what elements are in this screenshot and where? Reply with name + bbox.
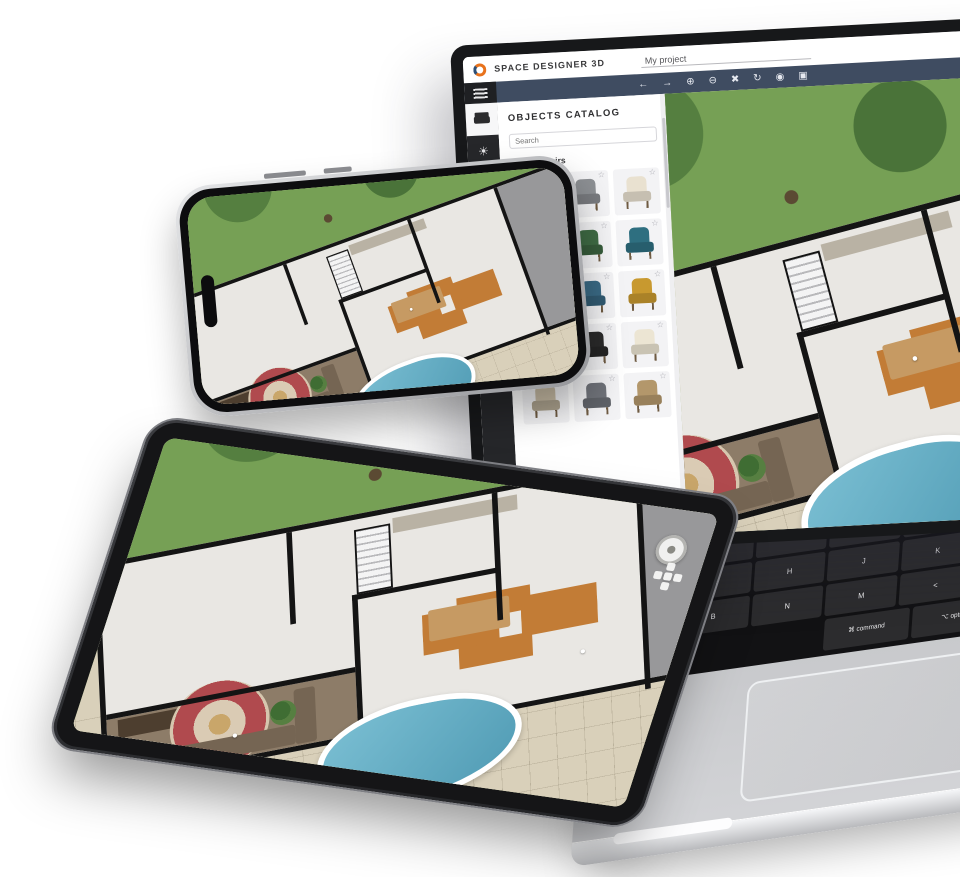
catalog-item[interactable]: ☆ — [572, 374, 620, 422]
fullscreen-icon[interactable]: ✖ — [731, 74, 740, 84]
phone-bezel — [177, 157, 589, 414]
interior-wall — [286, 532, 296, 625]
dining-table — [882, 324, 960, 381]
catalog-item[interactable]: ☆ — [613, 167, 661, 215]
armchair-thumbnail — [632, 377, 664, 413]
zoom-in-icon[interactable]: ⊕ — [686, 77, 695, 87]
floorplan-3d-viewport[interactable] — [665, 71, 960, 534]
screenshot-icon[interactable]: ◉ — [775, 72, 784, 82]
armchair-thumbnail — [581, 380, 613, 416]
chair-legs-shape — [575, 203, 597, 211]
dining-table — [391, 286, 447, 324]
phone-volume-button — [264, 170, 306, 179]
chair-legs-shape — [632, 303, 654, 311]
selection-marker[interactable] — [581, 649, 586, 654]
selection-marker[interactable] — [291, 402, 295, 406]
chair-legs-shape — [535, 410, 557, 418]
floorplan — [71, 437, 719, 807]
project-name-field[interactable]: My project — [641, 45, 811, 68]
trackpad[interactable] — [740, 650, 960, 803]
chair-legs-shape — [629, 252, 651, 260]
phone-power-button — [324, 166, 352, 173]
sofa-corner — [293, 686, 317, 745]
zoom-out-icon[interactable]: ⊖ — [708, 76, 717, 86]
tablet-floorplan-view[interactable] — [71, 437, 719, 807]
floorplan — [186, 166, 581, 406]
chair-legs-shape — [626, 201, 648, 209]
catalog-item[interactable]: ☆ — [618, 269, 666, 317]
catalog-title: OBJECTS CATALOG — [508, 105, 656, 124]
staircase — [782, 250, 838, 331]
chair-legs-shape — [586, 407, 608, 415]
living-room — [206, 351, 371, 406]
sidebar-icon-glyph — [472, 111, 491, 128]
chair-legs-shape — [634, 354, 656, 362]
catalog-item[interactable]: ☆ — [615, 218, 663, 266]
living-room — [106, 672, 358, 782]
armchair-thumbnail — [624, 225, 656, 261]
hero-stage: SPACE DESIGNER 3D My project ←→⊕⊖✖↻◉▣ OB… — [0, 0, 960, 877]
sidebar-icon-glyph — [474, 143, 493, 160]
orbit-view-icon[interactable]: ↻ — [753, 73, 762, 83]
chair-legs-shape — [637, 405, 659, 413]
view-mode-icon[interactable]: ▣ — [798, 71, 808, 81]
interior-wall — [283, 264, 308, 325]
hamburger-menu-button[interactable] — [464, 82, 497, 105]
keyboard-key[interactable]: < — [899, 565, 960, 606]
catalog-item[interactable]: ☆ — [621, 320, 669, 368]
floorplan — [665, 71, 960, 534]
armchair-thumbnail — [629, 326, 661, 362]
phone-device — [173, 153, 594, 419]
redo-icon[interactable]: → — [662, 78, 673, 89]
catalog-search-input[interactable] — [509, 126, 658, 149]
keyboard-key[interactable]: K — [901, 530, 960, 571]
brand-logo-icon — [473, 63, 487, 77]
brand-name: SPACE DESIGNER 3D — [494, 58, 605, 74]
catalog-icon[interactable] — [465, 103, 499, 137]
staircase — [326, 249, 363, 299]
staircase — [354, 523, 393, 594]
hamburger-menu-icon — [473, 88, 488, 99]
phone-floorplan-view[interactable] — [186, 166, 581, 406]
armchair-thumbnail — [626, 276, 658, 312]
catalog-item[interactable]: ☆ — [623, 371, 671, 419]
armchair-thumbnail — [621, 174, 653, 210]
undo-icon[interactable]: ← — [638, 79, 649, 90]
interior-wall — [710, 266, 743, 370]
